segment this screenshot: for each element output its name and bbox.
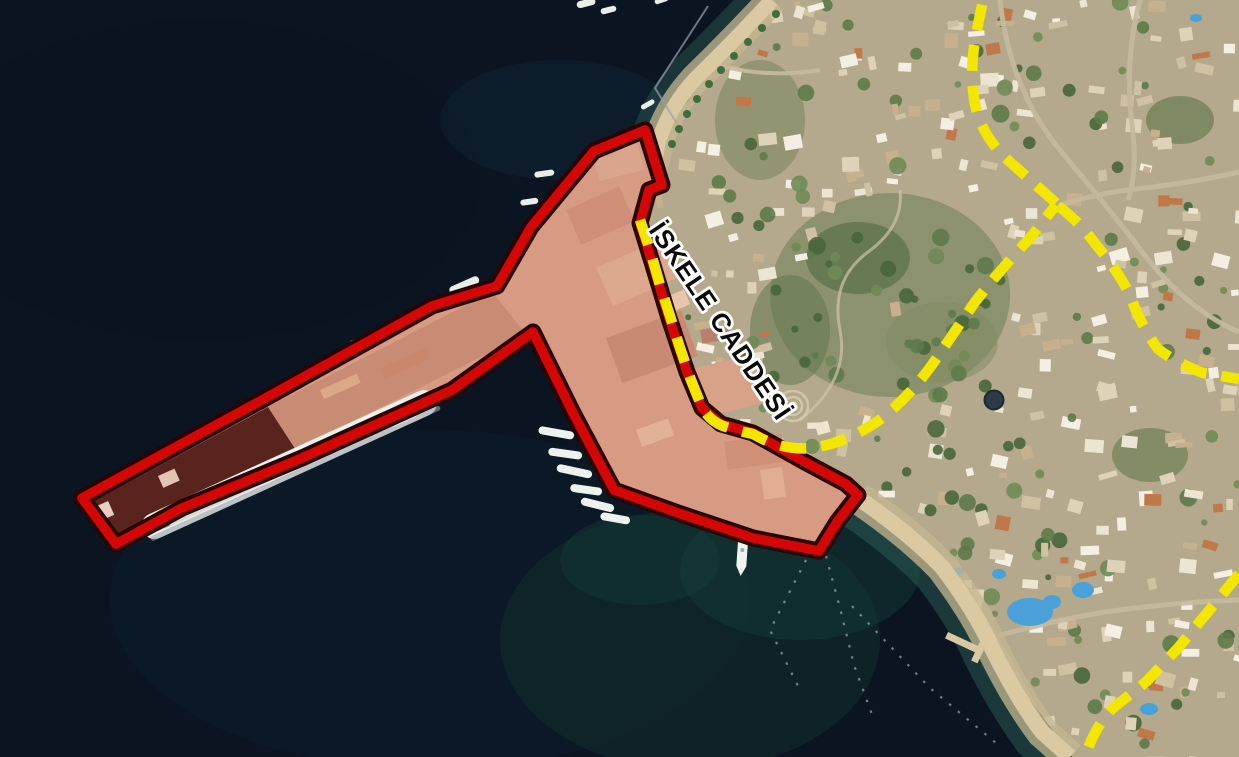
building [1157,137,1172,150]
vegetation-blob [1141,82,1149,90]
vegetation-blob [932,229,949,246]
building [1158,195,1169,206]
vegetation-blob [731,212,743,224]
vegetation-blob [1206,430,1219,443]
vegetation-blob [932,337,941,346]
vegetation-blob [968,318,980,330]
building [1163,291,1174,301]
building [838,69,847,76]
vegetation-blob [1137,21,1149,33]
vegetation-blob [927,420,944,437]
vegetation-blob [910,339,924,353]
vegetation-blob [958,546,973,561]
building [1188,208,1198,215]
vegetation-blob [1139,738,1150,749]
vegetation-blob [874,435,881,442]
tree [705,80,713,88]
vegetation-blob [1205,156,1215,166]
vegetation-blob [997,79,1013,95]
vegetation-blob [1010,122,1020,132]
satellite-map: İSKELE CADDESİ [0,0,1239,757]
vegetation-blob [1201,519,1207,525]
tree [717,66,725,74]
tree [668,140,676,148]
vegetation-blob [1087,699,1102,714]
vegetation-blob [828,265,843,280]
building [1146,621,1154,632]
building [1134,81,1143,96]
building [1144,494,1161,506]
vegetation-blob [791,326,798,333]
vegetation-blob [1118,67,1126,75]
building [931,148,942,159]
building [1080,546,1099,556]
building [1226,499,1233,510]
vegetation-blob [685,314,691,320]
building [1221,398,1235,411]
building [1217,692,1225,698]
vegetation-blob [951,366,967,382]
vegetation-blob [959,351,970,362]
building [758,132,777,146]
building [1208,367,1219,379]
water-tank [985,391,1004,410]
vegetation-blob [1112,161,1124,173]
vegetation-blob [712,175,726,189]
vegetation-blob [791,176,808,193]
vegetation-blob [807,251,814,258]
tree [772,10,780,18]
vegetation-blob [902,467,912,477]
tree [758,24,766,32]
pool [1043,595,1061,609]
vegetation-blob [1081,332,1093,344]
building [842,157,860,172]
vegetation-blob [812,352,819,359]
building [1179,27,1193,42]
building [736,97,752,107]
building [747,282,756,294]
building [696,141,706,153]
building [1148,0,1166,12]
vegetation-blob [1194,276,1204,286]
tree [744,38,752,46]
building [1040,359,1051,372]
building [1121,435,1138,448]
building [999,473,1007,478]
building [822,189,833,198]
vegetation-blob [771,285,782,296]
vegetation-blob [965,264,974,273]
building [1107,560,1126,574]
vegetation-blob [1181,688,1189,696]
vegetation-blob [945,490,959,504]
vegetation-blob [933,445,943,455]
building [1167,229,1182,235]
vegetation-blob [959,494,976,511]
building [1047,637,1066,647]
building [726,270,734,277]
vegetation-blob [1105,233,1118,246]
vegetation-blob [1033,32,1043,42]
tree [683,110,691,118]
vegetation-blob [1130,257,1139,266]
vegetation-blob [1045,574,1051,580]
building [1098,170,1108,182]
building [1043,669,1056,676]
vegetation-blob [798,85,815,102]
building [1137,271,1147,283]
building [753,254,765,262]
pool [1190,14,1202,22]
vegetation-blob [744,138,757,151]
building [1228,344,1239,350]
vegetation-blob [932,387,947,402]
vegetation-blob [948,310,956,318]
building [1030,87,1046,98]
building [1096,526,1109,535]
building [1213,504,1223,513]
tree [693,95,701,103]
building [792,33,808,47]
vegetation-blob [1014,437,1026,449]
bay-shallow-patch [560,515,720,605]
vegetation-blob [813,313,822,322]
vegetation-blob [791,242,800,251]
vegetation-blob [799,357,810,368]
vegetation-blob [871,285,882,296]
building [1130,406,1137,413]
building [678,159,696,172]
building [1233,100,1239,113]
vegetation-blob [911,296,918,303]
vegetation-blob [1068,413,1077,422]
vegetation-blob [753,220,764,231]
vegetation-blob [1023,136,1036,149]
building [1179,558,1197,574]
building [1185,328,1200,340]
vegetation-blob [858,78,871,91]
building [1123,672,1133,683]
pool [992,569,1006,579]
vegetation-blob [1203,347,1211,355]
vegetation-blob [880,261,896,277]
building [1117,517,1126,530]
building [925,99,941,111]
building [1018,387,1033,398]
vegetation-blob [1003,441,1014,452]
building [989,549,1005,560]
vegetation-blob [924,504,936,516]
vegetation-blob [1063,84,1076,97]
building [802,207,815,216]
vegetation-blob [851,232,863,244]
vegetation-blob [826,356,837,367]
building [1093,336,1109,343]
building [985,42,1001,56]
building [1136,286,1149,298]
vegetation-blob [1035,470,1044,479]
vegetation-blob [830,252,840,262]
building [1071,728,1080,736]
building [1021,495,1041,510]
vegetation-blob [1171,699,1182,710]
vegetation-blob [760,207,776,223]
building [1060,557,1068,563]
building [1084,439,1104,453]
building [1182,649,1200,657]
building [1026,208,1038,219]
vegetation-blob [1074,667,1091,684]
vegetation-blob [889,157,906,174]
building [1231,289,1239,296]
vegetation-blob [944,448,956,460]
building [945,33,959,48]
building [1055,575,1071,587]
building [1061,339,1073,345]
vegetation-blob [842,19,853,30]
building [1125,717,1137,730]
vegetation-blob [1031,677,1040,686]
pool [1072,582,1094,598]
vegetation-blob [1094,110,1108,124]
terminal-building [760,467,786,500]
vegetation-blob [1074,636,1082,644]
building [708,188,725,195]
building [1022,579,1038,589]
pool [1140,703,1158,715]
vegetation-blob [977,257,994,274]
vegetation-blob [991,105,1009,123]
building [711,270,718,277]
building [898,63,911,72]
tree [730,52,738,60]
vegetation-blob [910,48,922,60]
building [1041,543,1048,557]
vegetation-blob [805,439,820,454]
vegetation-blob [825,260,832,267]
satellite-map-screenshot: İSKELE CADDESİ [0,0,1239,757]
vegetation-blob [928,248,944,264]
vegetation-blob [1073,313,1081,321]
vegetation-blob [773,43,781,51]
building [708,144,721,156]
vegetation-blob [1006,483,1022,499]
tree [675,125,683,133]
vegetation-blob [723,189,736,202]
vegetation-blob [1026,65,1042,81]
vegetation-blob [1220,287,1227,294]
vegetation-blob [955,81,962,88]
building [908,106,920,117]
building [1224,44,1235,54]
vegetation-blob [1041,528,1054,541]
building [994,515,1011,532]
building [1150,129,1160,137]
vegetation-blob [1158,303,1165,310]
vegetation-blob [759,152,767,160]
vegetation-blob [1218,632,1235,649]
